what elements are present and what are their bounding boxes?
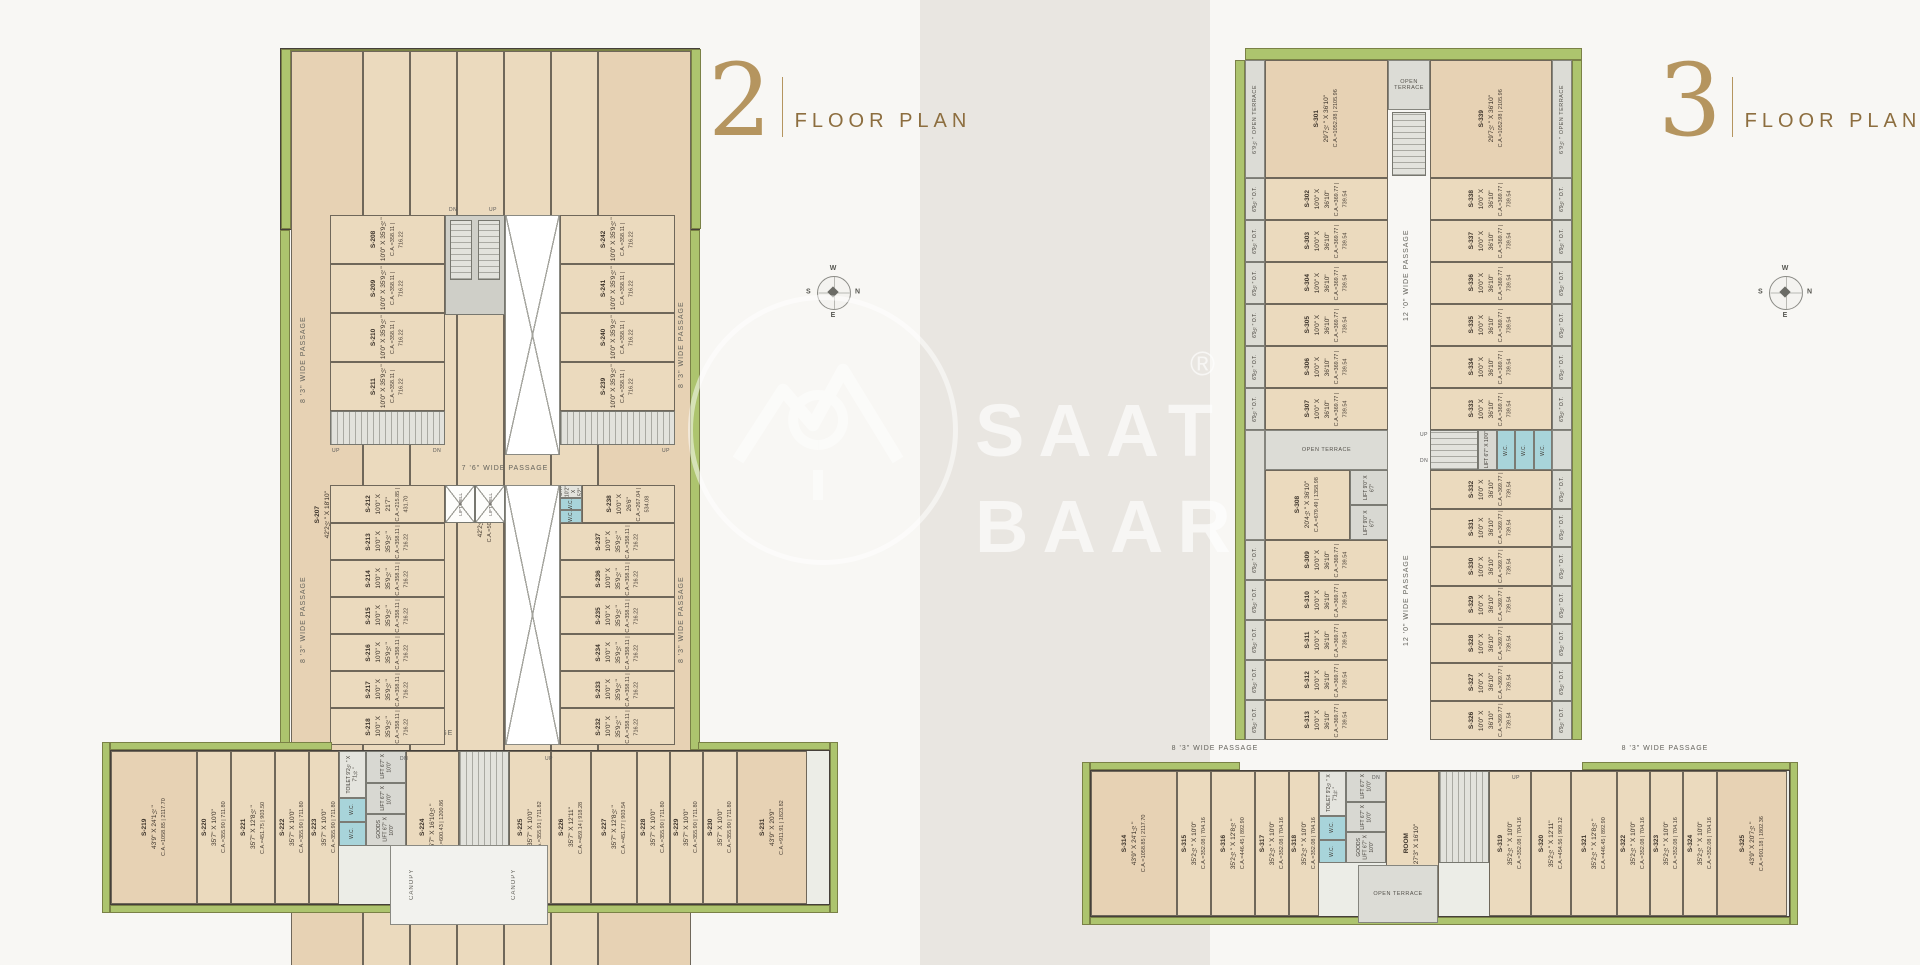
stairs xyxy=(560,411,675,445)
canopy-label: CANOPY xyxy=(409,854,415,914)
passage-label: 8 '3" WIDE PASSAGE xyxy=(678,265,685,425)
unit-S-305: S-30510'0" X 36'10"C.A.=369.77 | 739.54 xyxy=(1265,304,1388,346)
compass-n: N xyxy=(1807,289,1812,296)
unit-S-213: S-21310'0" X 35'9½"C.A.=358.11 | 716.22 xyxy=(330,523,445,560)
stairs xyxy=(1392,112,1426,176)
open-terrace-cell: 6'9½" O.T. xyxy=(1552,663,1572,702)
unit-S-218: S-21810'0" X 35'9½"C.A.=358.11 | 716.22 xyxy=(330,708,445,745)
open-terrace-cell: 6'9½" O.T. xyxy=(1245,700,1265,740)
green-wall xyxy=(281,49,291,229)
floor-title-3: 3 FLOOR PLAN xyxy=(1658,58,1920,143)
unit-S-334: S-33410'0" X 36'10"C.A.=369.77 | 739.54 xyxy=(1430,346,1552,388)
open-terrace-cell: 6'9½" O.T. xyxy=(1245,660,1265,700)
open-terrace-strip xyxy=(1245,430,1265,540)
green-wall xyxy=(691,49,701,229)
stairs xyxy=(330,411,445,445)
passage-label: 12 '0" WIDE PASSAGE xyxy=(1403,520,1410,680)
stair-dn-label: DN xyxy=(1372,775,1380,781)
plan2-top-block: S-20742'2½" X 18'10"C.A.=795.57 | 1591.1… xyxy=(280,48,700,230)
unit-S-323: S-32335'2½" X 10'0"C.A.=352.08 | 704.16 xyxy=(1650,771,1683,916)
green-wall xyxy=(1090,917,1790,925)
open-terrace-cell: 6'9½" O.T. xyxy=(1245,580,1265,620)
open-terrace-cell: 6'9½" O.T. xyxy=(1552,178,1572,220)
unit-S-223: S-22335'7" X 10'0"C.A.=355.90 | 711.80 xyxy=(309,751,339,904)
unit-S-211: S-21110'0" X 35'9½"C.A.=358.11 | 716.22 xyxy=(330,362,445,411)
unit-S-315: S-31535'2½" X 10'0"C.A.=352.08 | 704.16 xyxy=(1177,771,1211,916)
wc-cell: W.C. xyxy=(560,498,582,511)
title-divider xyxy=(1732,77,1733,137)
compass-w: W xyxy=(1782,265,1789,272)
wc-cell: W.C. xyxy=(339,822,366,846)
stair-dn-label: DN xyxy=(1420,458,1428,464)
floor-number: 2 xyxy=(708,58,772,143)
stair-dn-label: DN xyxy=(449,207,457,213)
unit-S-317: S-31735'2½" X 10'0"C.A.=352.08 | 704.16 xyxy=(1255,771,1289,916)
compass-n: N xyxy=(855,289,860,296)
passage-label: 8 '3" WIDE PASSAGE xyxy=(1130,745,1300,752)
unit-S-309: S-30910'0" X 36'10"C.A.=369.77 | 739.54 xyxy=(1265,540,1388,580)
unit-S-220: S-22035'7" X 10'0"C.A.=355.90 | 711.80 xyxy=(197,751,231,904)
compass-w: W xyxy=(830,265,837,272)
wc-cell: W.C. xyxy=(1497,430,1516,470)
passage-label: 7 '6" WIDE PASSAGE xyxy=(390,465,620,472)
open-terrace-strip: 6'9½" OPEN TERRACE xyxy=(1552,60,1572,178)
unit-S-335: S-33510'0" X 36'10"C.A.=369.77 | 739.54 xyxy=(1430,304,1552,346)
stair-up-label: UP xyxy=(489,207,497,213)
unit-S-219: S-21943'9" X 24'1½"C.A.=1058.85 | 2117.7… xyxy=(111,751,197,904)
toilet-core: TOILET 9'2½" X 7'1½" W.C. W.C. xyxy=(339,751,366,846)
toilet-cell: TOILET 9'2½" X 7'1½" xyxy=(1319,771,1346,816)
wc-cell: W.C. xyxy=(560,510,582,523)
canopy-label: CANOPY xyxy=(511,854,517,914)
passage-label: 8 '3" WIDE PASSAGE xyxy=(1580,745,1750,752)
floor-title-label: FLOOR PLAN xyxy=(795,110,972,133)
unit-S-324: S-32435'2½" X 10'0"C.A.=352.08 | 704.16 xyxy=(1683,771,1717,916)
compass-rose: W N E S xyxy=(1758,265,1812,319)
open-terrace-cell: 6'9½" O.T. xyxy=(1245,346,1265,388)
unit-S-330: S-33010'0" X 36'10"C.A.=369.77 | 739.54 xyxy=(1430,547,1552,586)
wc-cell: W.C. xyxy=(339,798,366,822)
floor-plan-2: S-20742'2½" X 18'10"C.A.=795.57 | 1591.1… xyxy=(100,0,960,965)
plan2-bottom-left-units: S-21943'9" X 24'1½"C.A.=1058.85 | 2117.7… xyxy=(111,751,339,904)
unit-S-215: S-21510'0" X 35'9½"C.A.=358.11 | 716.22 xyxy=(330,597,445,634)
unit-S-311: S-31110'0" X 36'10"C.A.=369.77 | 739.54 xyxy=(1265,620,1388,660)
green-wall xyxy=(830,742,838,913)
unit-S-307: S-30710'0" X 36'10"C.A.=369.77 | 739.54 xyxy=(1265,388,1388,430)
plan2-mid-right-upper: S-24210'0" X 35'9½"C.A.=358.11 | 716.22S… xyxy=(560,215,675,411)
passage-label: 8 '3" WIDE PASSAGE xyxy=(300,280,307,440)
canopy: CANOPY CANOPY xyxy=(390,845,548,925)
unit-S-242: S-24210'0" X 35'9½"C.A.=358.11 | 716.22 xyxy=(560,215,675,264)
open-terrace-cell: O.T. 10'2" X 5'2" xyxy=(560,485,582,498)
stairs xyxy=(459,751,509,846)
floor-plan-3: 6'9½" OPEN TERRACE 6'9½" O.T.6'9½" O.T.6… xyxy=(1000,0,1920,965)
toilet-core: TOILET 9'2½" X 7'1½" W.C. W.C. xyxy=(1319,771,1346,863)
green-wall xyxy=(690,230,700,750)
plan2-bottom-right-units: S-22535'7" X 10'0"C.A.=355.91 | 711.82S-… xyxy=(509,751,807,904)
unit-S-212: S-21210'0" X 21'7"C.A.=215.85 | 431.70 xyxy=(330,485,445,523)
unit-S-303: S-30310'0" X 36'10"C.A.=369.77 | 739.54 xyxy=(1265,220,1388,262)
plan2-mid-left-upper: S-20810'0" X 35'9½"C.A.=358.11 | 716.22S… xyxy=(330,215,445,411)
unit-S-241: S-24110'0" X 35'9½"C.A.=358.11 | 716.22 xyxy=(560,264,675,313)
unit-S-231: S-23143'9" X 20'9"C.A.=911.91 | 1823.82 xyxy=(737,751,807,904)
lift-core: LIFT 9'0" X 6'7" LIFT 9'0" X 6'7" xyxy=(1350,470,1388,540)
title-divider xyxy=(782,77,783,137)
ot-cells-left-upper: 6'9½" O.T.6'9½" O.T.6'9½" O.T.6'9½" O.T.… xyxy=(1245,178,1265,430)
unit-S-302: S-30210'0" X 36'10"C.A.=369.77 | 739.54 xyxy=(1265,178,1388,220)
unit-S-239: S-23910'0" X 35'9½"C.A.=358.11 | 716.22 xyxy=(560,362,675,411)
lift-cell: LIFT 6'7" X 10'0" xyxy=(1478,430,1497,470)
open-terrace-cell: 6'9½" O.T. xyxy=(1552,509,1572,548)
plan3-bottom-right-units: S-31935'2½" X 10'0"C.A.=352.08 | 704.16S… xyxy=(1489,771,1787,916)
stair-up-label: UP xyxy=(1420,432,1428,438)
green-wall xyxy=(110,742,332,750)
lift-wells: LIFT WELL LIFT WELL xyxy=(445,485,505,523)
floor-title-2: 2 FLOOR PLAN xyxy=(708,58,971,143)
open-terrace-cell: 6'9½" O.T. xyxy=(1552,388,1572,430)
open-terrace-box: OPEN TERRACE xyxy=(1265,430,1388,470)
unit-S-217: S-21710'0" X 35'9½"C.A.=358.11 | 716.22 xyxy=(330,671,445,708)
ot-cells-right-upper: 6'9½" O.T.6'9½" O.T.6'9½" O.T.6'9½" O.T.… xyxy=(1552,178,1572,430)
unit-S-326: S-32610'0" X 36'10"C.A.=369.77 | 739.54 xyxy=(1430,701,1552,740)
unit-S-232: S-23210'0" X 35'9½"C.A.=358.11 | 716.22 xyxy=(560,708,675,745)
unit-S-337: S-33710'0" X 36'10"C.A.=369.77 | 739.54 xyxy=(1430,220,1552,262)
stairs xyxy=(1439,771,1489,863)
green-wall xyxy=(1245,48,1582,60)
open-terrace-cell: 6'9½" O.T. xyxy=(1552,586,1572,625)
wc-cell: W.C. xyxy=(1319,840,1346,864)
compass-s: S xyxy=(806,289,811,296)
unit-S-236: S-23610'0" X 35'9½"C.A.=358.11 | 716.22 xyxy=(560,560,675,597)
green-wall xyxy=(1082,762,1090,925)
open-terrace-cell: 6'9½" O.T. xyxy=(1552,624,1572,663)
stair-up-label: UP xyxy=(662,448,670,454)
unit-S-328: S-32810'0" X 36'10"C.A.=369.77 | 739.54 xyxy=(1430,624,1552,663)
goods-lift-cell: GOODS LIFT 6'7" X 10'0" xyxy=(366,814,406,846)
unit-S-214: S-21410'0" X 35'9½"C.A.=358.11 | 716.22 xyxy=(330,560,445,597)
unit-S-318: S-31835'2½" X 10'0"C.A.=352.08 | 704.16 xyxy=(1289,771,1319,916)
ot-cells-left-lower: 6'9½" O.T.6'9½" O.T.6'9½" O.T.6'9½" O.T.… xyxy=(1245,540,1265,740)
lift-well: LIFT WELL xyxy=(475,485,505,523)
green-wall xyxy=(280,230,290,750)
unit-S-338: S-33810'0" X 36'10"C.A.=369.77 | 739.54 xyxy=(1430,178,1552,220)
lift-core: LIFT 6'7" X 10'0" LIFT 6'7" X 10'0" GOOD… xyxy=(366,751,406,846)
floor-title-label: FLOOR PLAN xyxy=(1745,110,1920,133)
lift-cell: LIFT 6'7" X 10'0" xyxy=(1346,802,1386,833)
open-terrace-cell: 6'9½" O.T. xyxy=(1552,470,1572,509)
stair-dn-label: DN xyxy=(433,448,441,454)
unit-S-313: S-31310'0" X 36'10"C.A.=369.77 | 739.54 xyxy=(1265,700,1388,740)
wc-cell: W.C. xyxy=(1534,430,1553,470)
floorplan-sheet: S-20742'2½" X 18'10"C.A.=795.57 | 1591.1… xyxy=(0,0,1920,965)
compass-rose: W N E S xyxy=(806,265,860,319)
open-terrace-cell: 6'9½" O.T. xyxy=(1245,220,1265,262)
lift-cell: LIFT 9'0" X 6'7" xyxy=(1350,505,1388,540)
unit-S-331: S-33110'0" X 36'10"C.A.=369.77 | 739.54 xyxy=(1430,509,1552,548)
unit-S-208: S-20810'0" X 35'9½"C.A.=358.11 | 716.22 xyxy=(330,215,445,264)
green-wall xyxy=(1090,762,1240,770)
plan3-left-lower-units: S-30910'0" X 36'10"C.A.=369.77 | 739.54S… xyxy=(1265,540,1388,740)
lift-cell: LIFT 9'0" X 6'7" xyxy=(1350,470,1388,505)
unit-S-230: S-23035'7" X 10'0"C.A.=355.90 | 711.80 xyxy=(703,751,737,904)
unit-S-321: S-32135'2½" X 12'8½"C.A.=446.45 | 892.90 xyxy=(1571,771,1617,916)
unit-S-229: S-22935'7" X 10'0"C.A.=355.90 | 711.80 xyxy=(670,751,703,904)
stair-up-label: UP xyxy=(545,756,553,762)
plan2-mid-left-lower: S-21310'0" X 35'9½"C.A.=358.11 | 716.22S… xyxy=(330,523,445,745)
unit-S-332: S-33210'0" X 36'10"C.A.=369.77 | 739.54 xyxy=(1430,470,1552,509)
green-wall xyxy=(102,742,110,913)
unit-S-226: S-22635'7" X 12'11"C.A.=459.14 | 918.28 xyxy=(551,751,591,904)
lift-cell: LIFT 6'7" X 10'0" xyxy=(366,783,406,815)
stair-up-label: UP xyxy=(332,448,340,454)
atrium-void xyxy=(505,485,560,745)
compass-s: S xyxy=(1758,289,1763,296)
ot-cells-right-lower: 6'9½" O.T.6'9½" O.T.6'9½" O.T.6'9½" O.T.… xyxy=(1552,470,1572,740)
open-terrace-cell: 6'9½" O.T. xyxy=(1245,262,1265,304)
open-terrace-cell: 6'9½" O.T. xyxy=(1245,620,1265,660)
plan3-left-upper-units: S-30210'0" X 36'10"C.A.=369.77 | 739.54S… xyxy=(1265,178,1388,430)
wc-cell: W.C. xyxy=(1515,430,1534,470)
open-terrace-box: OPEN TERRACE xyxy=(1388,60,1430,110)
green-wall xyxy=(1582,762,1790,770)
open-terrace-box: OPEN TERRACE xyxy=(1358,865,1438,923)
wc-cell: W.C. xyxy=(1319,816,1346,840)
unit-S-222: S-22235'7" X 10'0"C.A.=355.90 | 711.80 xyxy=(275,751,309,904)
unit-S-329: S-32910'0" X 36'10"C.A.=369.77 | 739.54 xyxy=(1430,586,1552,625)
plan3-right-lower-units: S-33210'0" X 36'10"C.A.=369.77 | 739.54S… xyxy=(1430,470,1552,740)
unit-S-308: S-30820'4½" X 36'10"C.A.=679.49 | 1358.9… xyxy=(1265,470,1350,540)
goods-lift-cell: GOODS LIFT 6'7" X 10'0" xyxy=(1346,832,1386,863)
lift-core: LIFT 6'7" X 10'0" LIFT 6'7" X 10'0" GOOD… xyxy=(1346,771,1386,863)
passage-label: 12 '0" WIDE PASSAGE xyxy=(1403,195,1410,355)
lift-well: LIFT WELL xyxy=(445,485,475,523)
open-terrace-strip xyxy=(1552,430,1572,470)
unit-S-210: S-21010'0" X 35'9½"C.A.=358.11 | 716.22 xyxy=(330,313,445,362)
unit-S-327: S-32710'0" X 36'10"C.A.=369.77 | 739.54 xyxy=(1430,663,1552,702)
unit-S-233: S-23310'0" X 35'9½"C.A.=358.11 | 716.22 xyxy=(560,671,675,708)
unit-S-304: S-30410'0" X 36'10"C.A.=369.77 | 739.54 xyxy=(1265,262,1388,304)
wc-core: LIFT 6'7" X 10'0" W.C. W.C. W.C. xyxy=(1478,430,1552,470)
unit-S-216: S-21610'0" X 35'9½"C.A.=358.11 | 716.22 xyxy=(330,634,445,671)
unit-S-306: S-30610'0" X 36'10"C.A.=369.77 | 739.54 xyxy=(1265,346,1388,388)
open-terrace-cell: 6'9½" O.T. xyxy=(1245,304,1265,346)
open-terrace-cell: 6'9½" O.T. xyxy=(1552,262,1572,304)
open-terrace-cell: 6'9½" O.T. xyxy=(1552,220,1572,262)
green-wall xyxy=(698,742,830,750)
open-terrace-cell: 6'9½" O.T. xyxy=(1552,304,1572,346)
unit-S-325: S-32543'9" X 20'7½"C.A.=901.18 | 1802.36 xyxy=(1717,771,1787,916)
unit-S-234: S-23410'0" X 35'9½"C.A.=358.11 | 716.22 xyxy=(560,634,675,671)
unit-S-320: S-32035'2½" X 12'11"C.A.=454.56 | 909.12 xyxy=(1531,771,1571,916)
plan2-mid-right-lower: S-23710'0" X 35'9½"C.A.=358.11 | 716.22S… xyxy=(560,523,675,745)
plan3-bottom-block: S-31443'9" X 24'1½"C.A.=1058.85 | 2117.7… xyxy=(1090,770,1790,917)
open-terrace-cell: 6'9½" O.T. xyxy=(1245,388,1265,430)
unit-S-235: S-23510'0" X 35'9½"C.A.=358.11 | 716.22 xyxy=(560,597,675,634)
unit-S-322: S-32235'2½" X 10'0"C.A.=352.08 | 704.16 xyxy=(1617,771,1650,916)
floor-number: 3 xyxy=(1658,58,1722,143)
unit-S-333: S-33310'0" X 36'10"C.A.=369.77 | 739.54 xyxy=(1430,388,1552,430)
unit-S-227: S-22735'7" X 12'8½"C.A.=451.77 | 903.54 xyxy=(591,751,637,904)
green-wall xyxy=(1790,762,1798,925)
open-terrace-cell: 6'9½" O.T. xyxy=(1552,547,1572,586)
stairs xyxy=(1430,430,1478,470)
green-wall xyxy=(1235,60,1245,740)
compass-e: E xyxy=(1783,312,1788,319)
unit-S-301: S-30129'7½" X 36'10"C.A.=1052.98 | 2105.… xyxy=(1265,60,1388,178)
stair-core xyxy=(445,215,505,315)
unit-S-240: S-24010'0" X 35'9½"C.A.=358.11 | 716.22 xyxy=(560,313,675,362)
unit-S-310: S-31010'0" X 36'10"C.A.=369.77 | 739.54 xyxy=(1265,580,1388,620)
green-wall xyxy=(1572,60,1582,740)
open-terrace-cell: 6'9½" O.T. xyxy=(1245,178,1265,220)
toilet-cell: TOILET 9'2½" X 7'1½" xyxy=(339,751,366,798)
compass-e: E xyxy=(831,312,836,319)
open-terrace-cell: 6'9½" O.T. xyxy=(1552,701,1572,740)
unit-S-336: S-33610'0" X 36'10"C.A.=369.77 | 739.54 xyxy=(1430,262,1552,304)
unit-S-209: S-20910'0" X 35'9½"C.A.=358.11 | 716.22 xyxy=(330,264,445,313)
plan3-right-upper-units: S-33810'0" X 36'10"C.A.=369.77 | 739.54S… xyxy=(1430,178,1552,430)
unit-S-221: S-22135'7" X 12'8½"C.A.=451.75 | 903.50 xyxy=(231,751,275,904)
unit-S-314: S-31443'9" X 24'1½"C.A.=1058.85 | 2117.7… xyxy=(1091,771,1177,916)
unit-S-228: S-22835'7" X 10'0"C.A.=355.90 | 711.80 xyxy=(637,751,670,904)
atrium-void xyxy=(505,215,560,455)
unit-S-319: S-31935'2½" X 10'0"C.A.=352.08 | 704.16 xyxy=(1489,771,1531,916)
open-terrace-cell: 6'9½" O.T. xyxy=(1552,346,1572,388)
plan3-bottom-left-units: S-31443'9" X 24'1½"C.A.=1058.85 | 2117.7… xyxy=(1091,771,1319,916)
open-terrace-cell: 6'9½" O.T. xyxy=(1245,540,1265,580)
unit-S-316: S-31635'2½" X 12'8½"C.A.=446.45 | 892.90 xyxy=(1211,771,1255,916)
unit-S-339: S-33929'7½" X 36'10"C.A.=1052.98 | 2105.… xyxy=(1430,60,1552,178)
open-terrace-strip: 6'9½" OPEN TERRACE xyxy=(1245,60,1265,178)
stair-dn-label: DN xyxy=(400,756,408,762)
stair-up-label: UP xyxy=(1512,775,1520,781)
unit-S-237: S-23710'0" X 35'9½"C.A.=358.11 | 716.22 xyxy=(560,523,675,560)
passage-label: 8 '3" WIDE PASSAGE xyxy=(678,540,685,700)
ot-wc-cells: O.T. 10'2" X 5'2" W.C. W.C. xyxy=(560,485,582,523)
passage-label: 8 '3" WIDE PASSAGE xyxy=(300,540,307,700)
unit-S-238: S-23810'0" X 26'6"C.A.=267.04 | 534.08 xyxy=(582,485,675,523)
unit-S-312: S-31210'0" X 36'10"C.A.=369.77 | 739.54 xyxy=(1265,660,1388,700)
